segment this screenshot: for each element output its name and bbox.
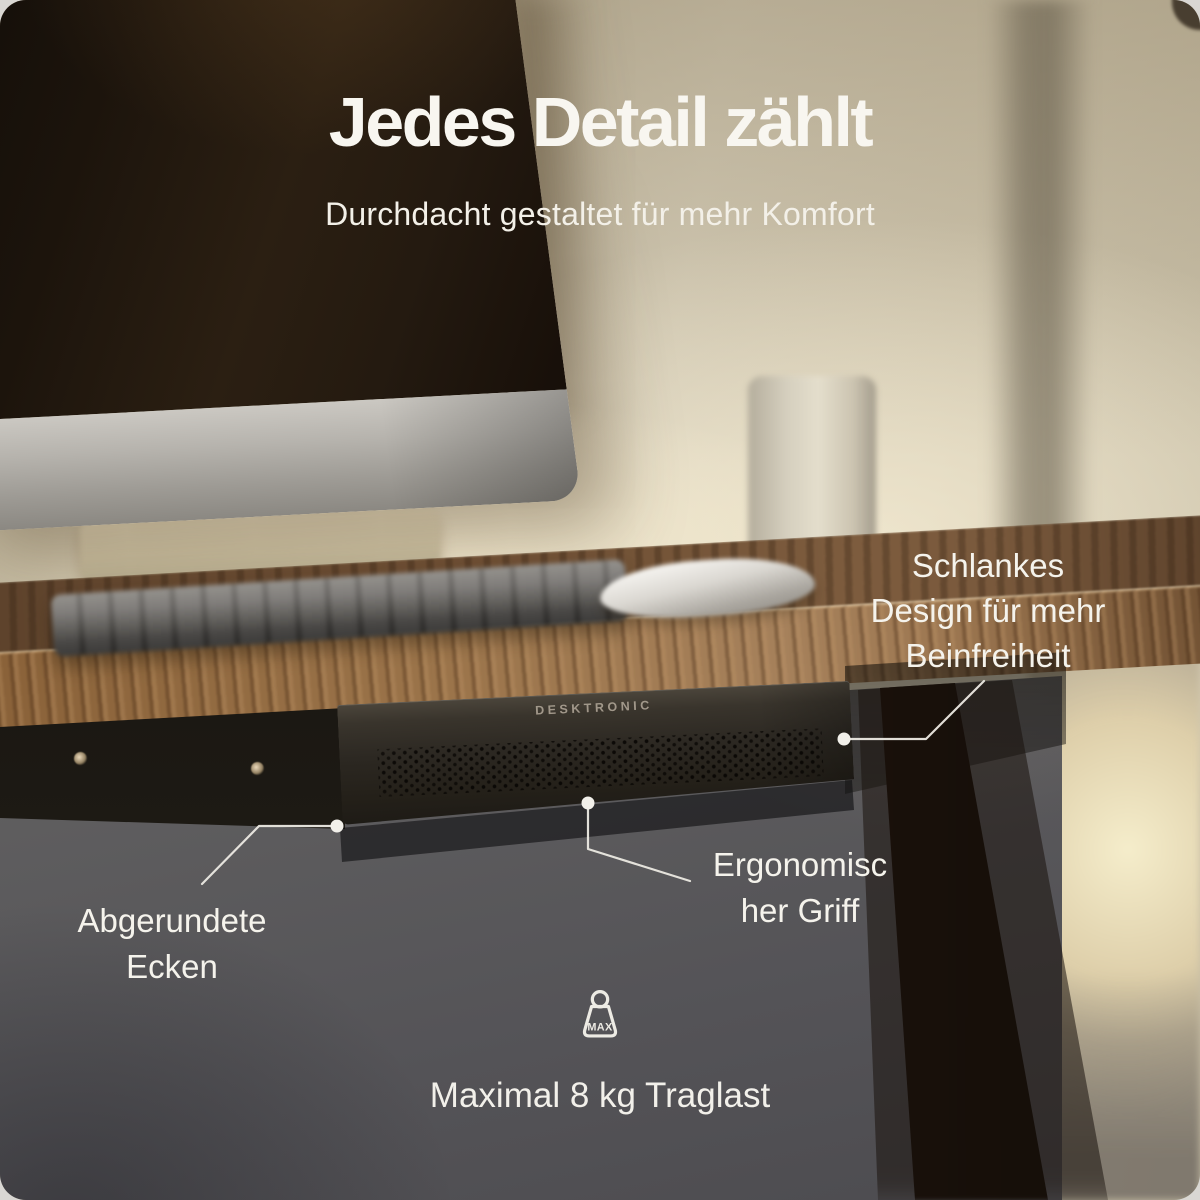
page-title: Jedes Detail zählt [0, 82, 1200, 162]
callout-line-text: Schlankes [828, 543, 1148, 588]
max-badge-text: MAX [587, 1022, 613, 1034]
max-load-label: Maximal 8 kg Traglast [0, 1076, 1200, 1116]
callout-line-text: her Griff [645, 888, 955, 934]
callout-line-text: Ergonomisc [645, 842, 955, 888]
slim-design-anchor-dot [838, 733, 851, 746]
callout-line-text: Ecken [12, 944, 332, 990]
rounded-corners-leader-line [202, 826, 337, 884]
callout-line-text: Abgerundete [12, 898, 332, 944]
callout-line-text: Beinfreiheit [828, 633, 1148, 678]
callout-ergonomic-handle: Ergonomisc her Griff [645, 842, 955, 934]
callout-slim-design: Schlankes Design für mehr Beinfreiheit [828, 543, 1148, 678]
slim-design-leader-line [844, 681, 984, 739]
weight-max-icon: MAX [574, 988, 626, 1046]
product-feature-card: DESKTRONIC Jedes Detail zählt Durchdacht… [0, 0, 1200, 1200]
page-subtitle: Durchdacht gestaltet für mehr Komfort [0, 196, 1200, 233]
rounded-corners-anchor-dot [331, 820, 344, 833]
callout-rounded-corners: Abgerundete Ecken [12, 898, 332, 990]
ergonomic-handle-anchor-dot [582, 797, 595, 810]
callout-line-text: Design für mehr [828, 588, 1148, 633]
